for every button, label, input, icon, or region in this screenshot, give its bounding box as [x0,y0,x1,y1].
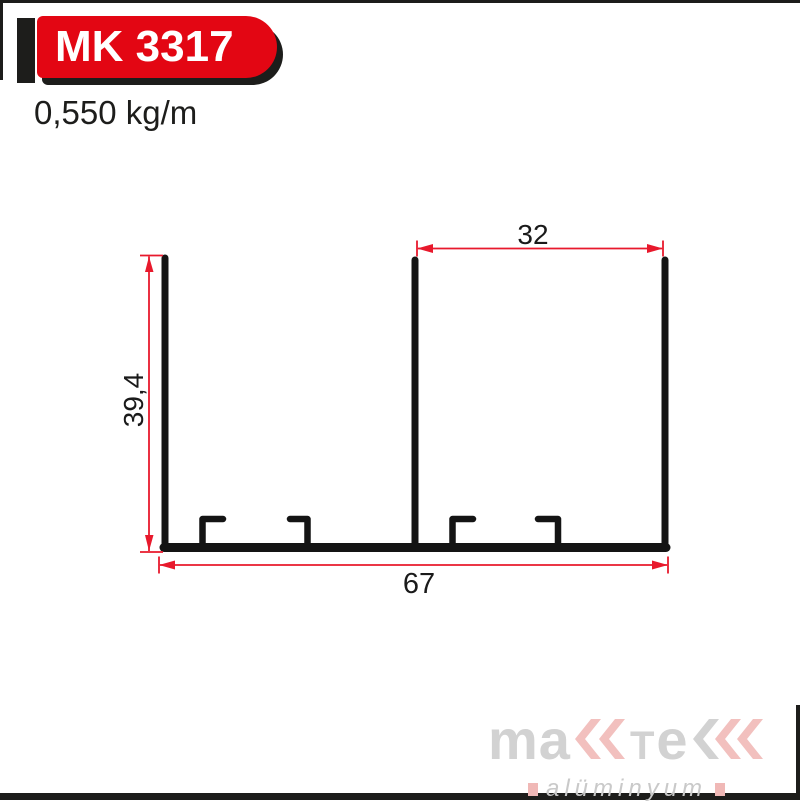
dimension-width-label: 67 [389,570,449,599]
brand-k-chevrons-icon [575,719,625,759]
subtitle-right-square-icon [715,783,725,796]
subtitle-left-square-icon [528,783,538,796]
brand-subtitle-row: alüminyum [528,777,778,801]
brand-wordmark: ma T e [488,712,778,768]
brand-letters-ma: ma [488,712,571,768]
brand-letter-e: e [656,712,688,768]
profile-outline [164,258,666,548]
brand-final-k-chevrons-icon [693,719,763,759]
dimension-inner-width-label: 32 [503,221,563,249]
brand-logo: ma T e alüminyum [488,712,778,801]
brand-subtitle: alüminyum [546,777,707,801]
brand-letter-t: T [630,726,655,766]
dimension-height-label: 39,4 [120,360,148,440]
